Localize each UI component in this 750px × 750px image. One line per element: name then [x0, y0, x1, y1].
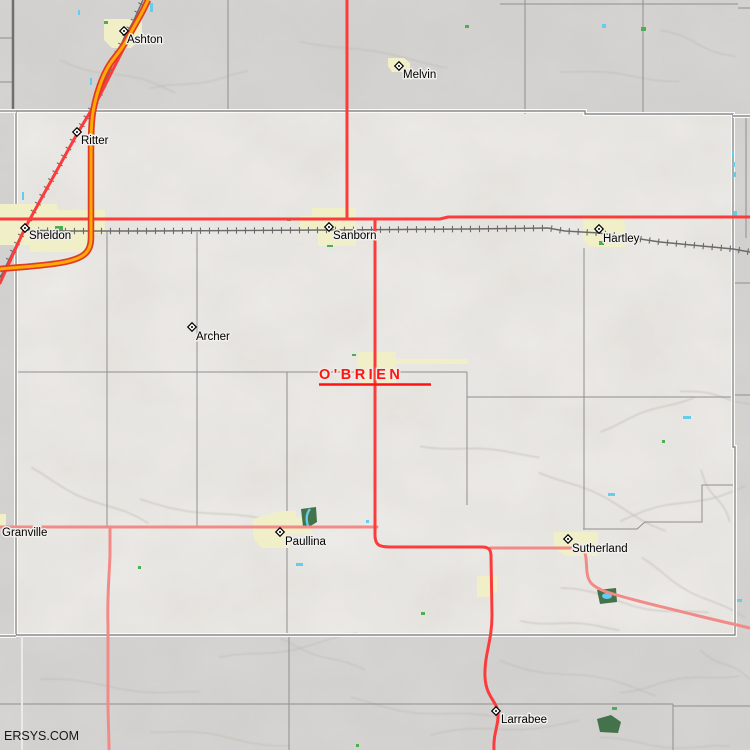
town-label-melvin[interactable]: Melvin	[403, 69, 436, 81]
water-speck	[734, 172, 736, 177]
town-label-granville[interactable]: Granville	[2, 527, 47, 539]
water-speck	[296, 563, 303, 566]
map-canvas[interactable]: AshtonMelvinRitterSheldonSanbornHartleyA…	[0, 0, 750, 750]
vegetation-speck	[662, 440, 665, 443]
town-area-granville	[0, 514, 6, 526]
water-speck	[22, 192, 24, 200]
water-speck	[737, 599, 742, 602]
town-label-archer[interactable]: Archer	[196, 331, 230, 343]
railroad-tick	[703, 243, 704, 249]
town-label-paullina[interactable]: Paullina	[285, 536, 327, 548]
vegetation-speck	[465, 25, 469, 28]
vegetation-speck	[104, 21, 108, 24]
town-label-sheldon[interactable]: Sheldon	[29, 230, 71, 242]
railroad-tick	[730, 246, 731, 252]
vegetation-speck	[641, 27, 646, 31]
water-speck	[733, 162, 735, 167]
water-speck	[732, 151, 734, 157]
vegetation-speck	[327, 245, 333, 247]
county-label: O'BRIEN	[319, 367, 403, 383]
railroad-tick	[667, 240, 668, 246]
town-label-hartley[interactable]: Hartley	[603, 233, 640, 245]
water-speck	[683, 416, 691, 419]
town-label-ritter[interactable]: Ritter	[81, 135, 109, 147]
county-map-svg: AshtonMelvinRitterSheldonSanbornHartleyA…	[0, 0, 750, 750]
railroad-tick	[712, 244, 713, 250]
water-speck	[78, 10, 80, 15]
town-label-sutherland[interactable]: Sutherland	[572, 543, 628, 555]
vegetation-speck	[421, 612, 425, 615]
town-label-larrabee[interactable]: Larrabee	[501, 714, 547, 726]
railroad-tick	[721, 245, 722, 251]
vegetation-speck	[352, 354, 356, 356]
vegetation-speck	[138, 566, 141, 569]
water-speck	[602, 24, 606, 28]
water-speck	[608, 493, 615, 496]
water-speck	[90, 78, 92, 85]
water-speck	[366, 520, 369, 523]
vegetation-speck	[612, 707, 617, 710]
railroad-tick	[694, 242, 695, 248]
water-speck	[150, 3, 153, 12]
watermark-ersys: ERSYS.COM	[4, 729, 79, 743]
railroad-tick	[676, 240, 677, 246]
town-label-ashton[interactable]: Ashton	[127, 34, 163, 46]
town-label-sanborn[interactable]: Sanborn	[333, 230, 376, 242]
vegetation-speck	[356, 744, 359, 747]
railroad-tick	[685, 241, 686, 247]
